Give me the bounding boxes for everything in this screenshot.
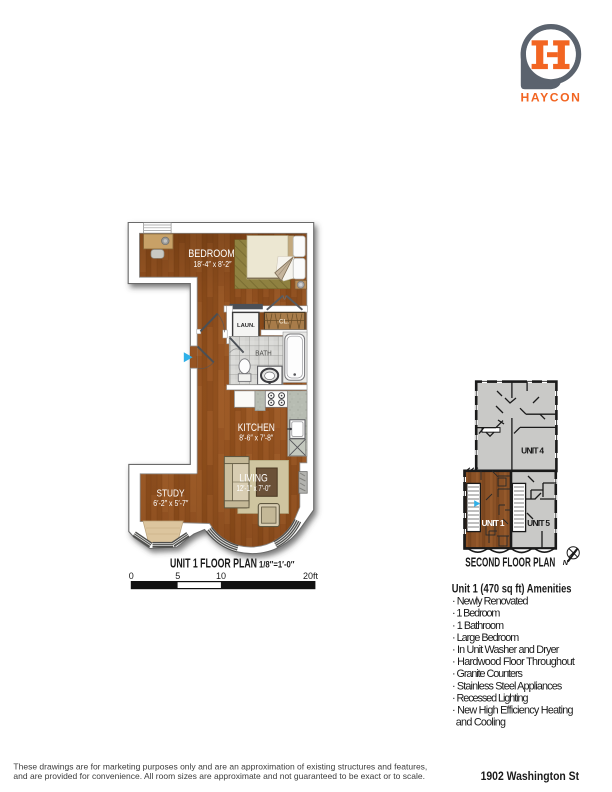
svg-text:and Cooling: and Cooling: [456, 717, 506, 729]
svg-text:· Hardwood Floor Throughout: · Hardwood Floor Throughout: [452, 656, 575, 668]
svg-text:· Recessed Lighting: · Recessed Lighting: [452, 692, 529, 704]
svg-text:· Newly Renovated: · Newly Renovated: [452, 596, 529, 608]
svg-text:18′-4″ x 8′-2″: 18′-4″ x 8′-2″: [194, 260, 232, 269]
svg-text:10: 10: [216, 571, 226, 581]
svg-text:CL.: CL.: [279, 319, 290, 326]
svg-text:· 1 Bedroom: · 1 Bedroom: [452, 608, 500, 620]
svg-text:5: 5: [175, 571, 180, 581]
svg-text:20ft: 20ft: [303, 571, 319, 581]
svg-text:· Granite Counters: · Granite Counters: [452, 668, 523, 680]
svg-text:LIVING: LIVING: [239, 473, 268, 485]
svg-text:and are provided for convenien: and are provided for convenience. All ro…: [13, 771, 425, 781]
svg-text:SECOND FLOOR PLAN: SECOND FLOOR PLAN: [465, 555, 555, 569]
svg-text:STUDY: STUDY: [157, 489, 185, 500]
svg-text:UNIT 1 FLOOR PLAN: UNIT 1 FLOOR PLAN: [170, 556, 257, 571]
svg-text:N: N: [563, 558, 569, 567]
svg-text:0: 0: [129, 571, 134, 581]
svg-text:12′-1″ x 7′-0″: 12′-1″ x 7′-0″: [237, 484, 271, 493]
svg-text:HAYCON: HAYCON: [521, 93, 582, 105]
svg-text:· 1 Bathroom: · 1 Bathroom: [452, 620, 504, 632]
svg-text:LAUN.: LAUN.: [237, 323, 255, 329]
svg-text:1/8″=1′-0″: 1/8″=1′-0″: [259, 560, 295, 570]
svg-text:BEDROOM: BEDROOM: [188, 248, 235, 260]
svg-text:Unit 1 (470 sq ft) Amenities: Unit 1 (470 sq ft) Amenities: [452, 582, 572, 595]
svg-text:UNIT 4: UNIT 4: [521, 445, 544, 455]
svg-text:1902 Washington St: 1902 Washington St: [481, 769, 579, 783]
svg-text:· New High Efficiency Heating: · New High Efficiency Heating: [452, 705, 574, 717]
svg-text:· Stainless Steel Appliances: · Stainless Steel Appliances: [452, 680, 563, 692]
svg-text:BATH: BATH: [255, 351, 272, 358]
svg-text:· In Unit Washer and Dryer: · In Unit Washer and Dryer: [452, 644, 560, 656]
svg-text:UNIT 1: UNIT 1: [482, 518, 505, 528]
svg-text:· Large Bedroom: · Large Bedroom: [452, 632, 519, 644]
svg-text:8′-6″ x 7′-8″: 8′-6″ x 7′-8″: [239, 433, 273, 442]
svg-text:These drawings are for marketi: These drawings are for marketing purpose…: [13, 762, 427, 772]
svg-text:6′-2″ x 5′-7″: 6′-2″ x 5′-7″: [153, 499, 188, 508]
svg-text:KITCHEN: KITCHEN: [238, 422, 275, 434]
svg-text:UNIT 5: UNIT 5: [527, 518, 550, 528]
